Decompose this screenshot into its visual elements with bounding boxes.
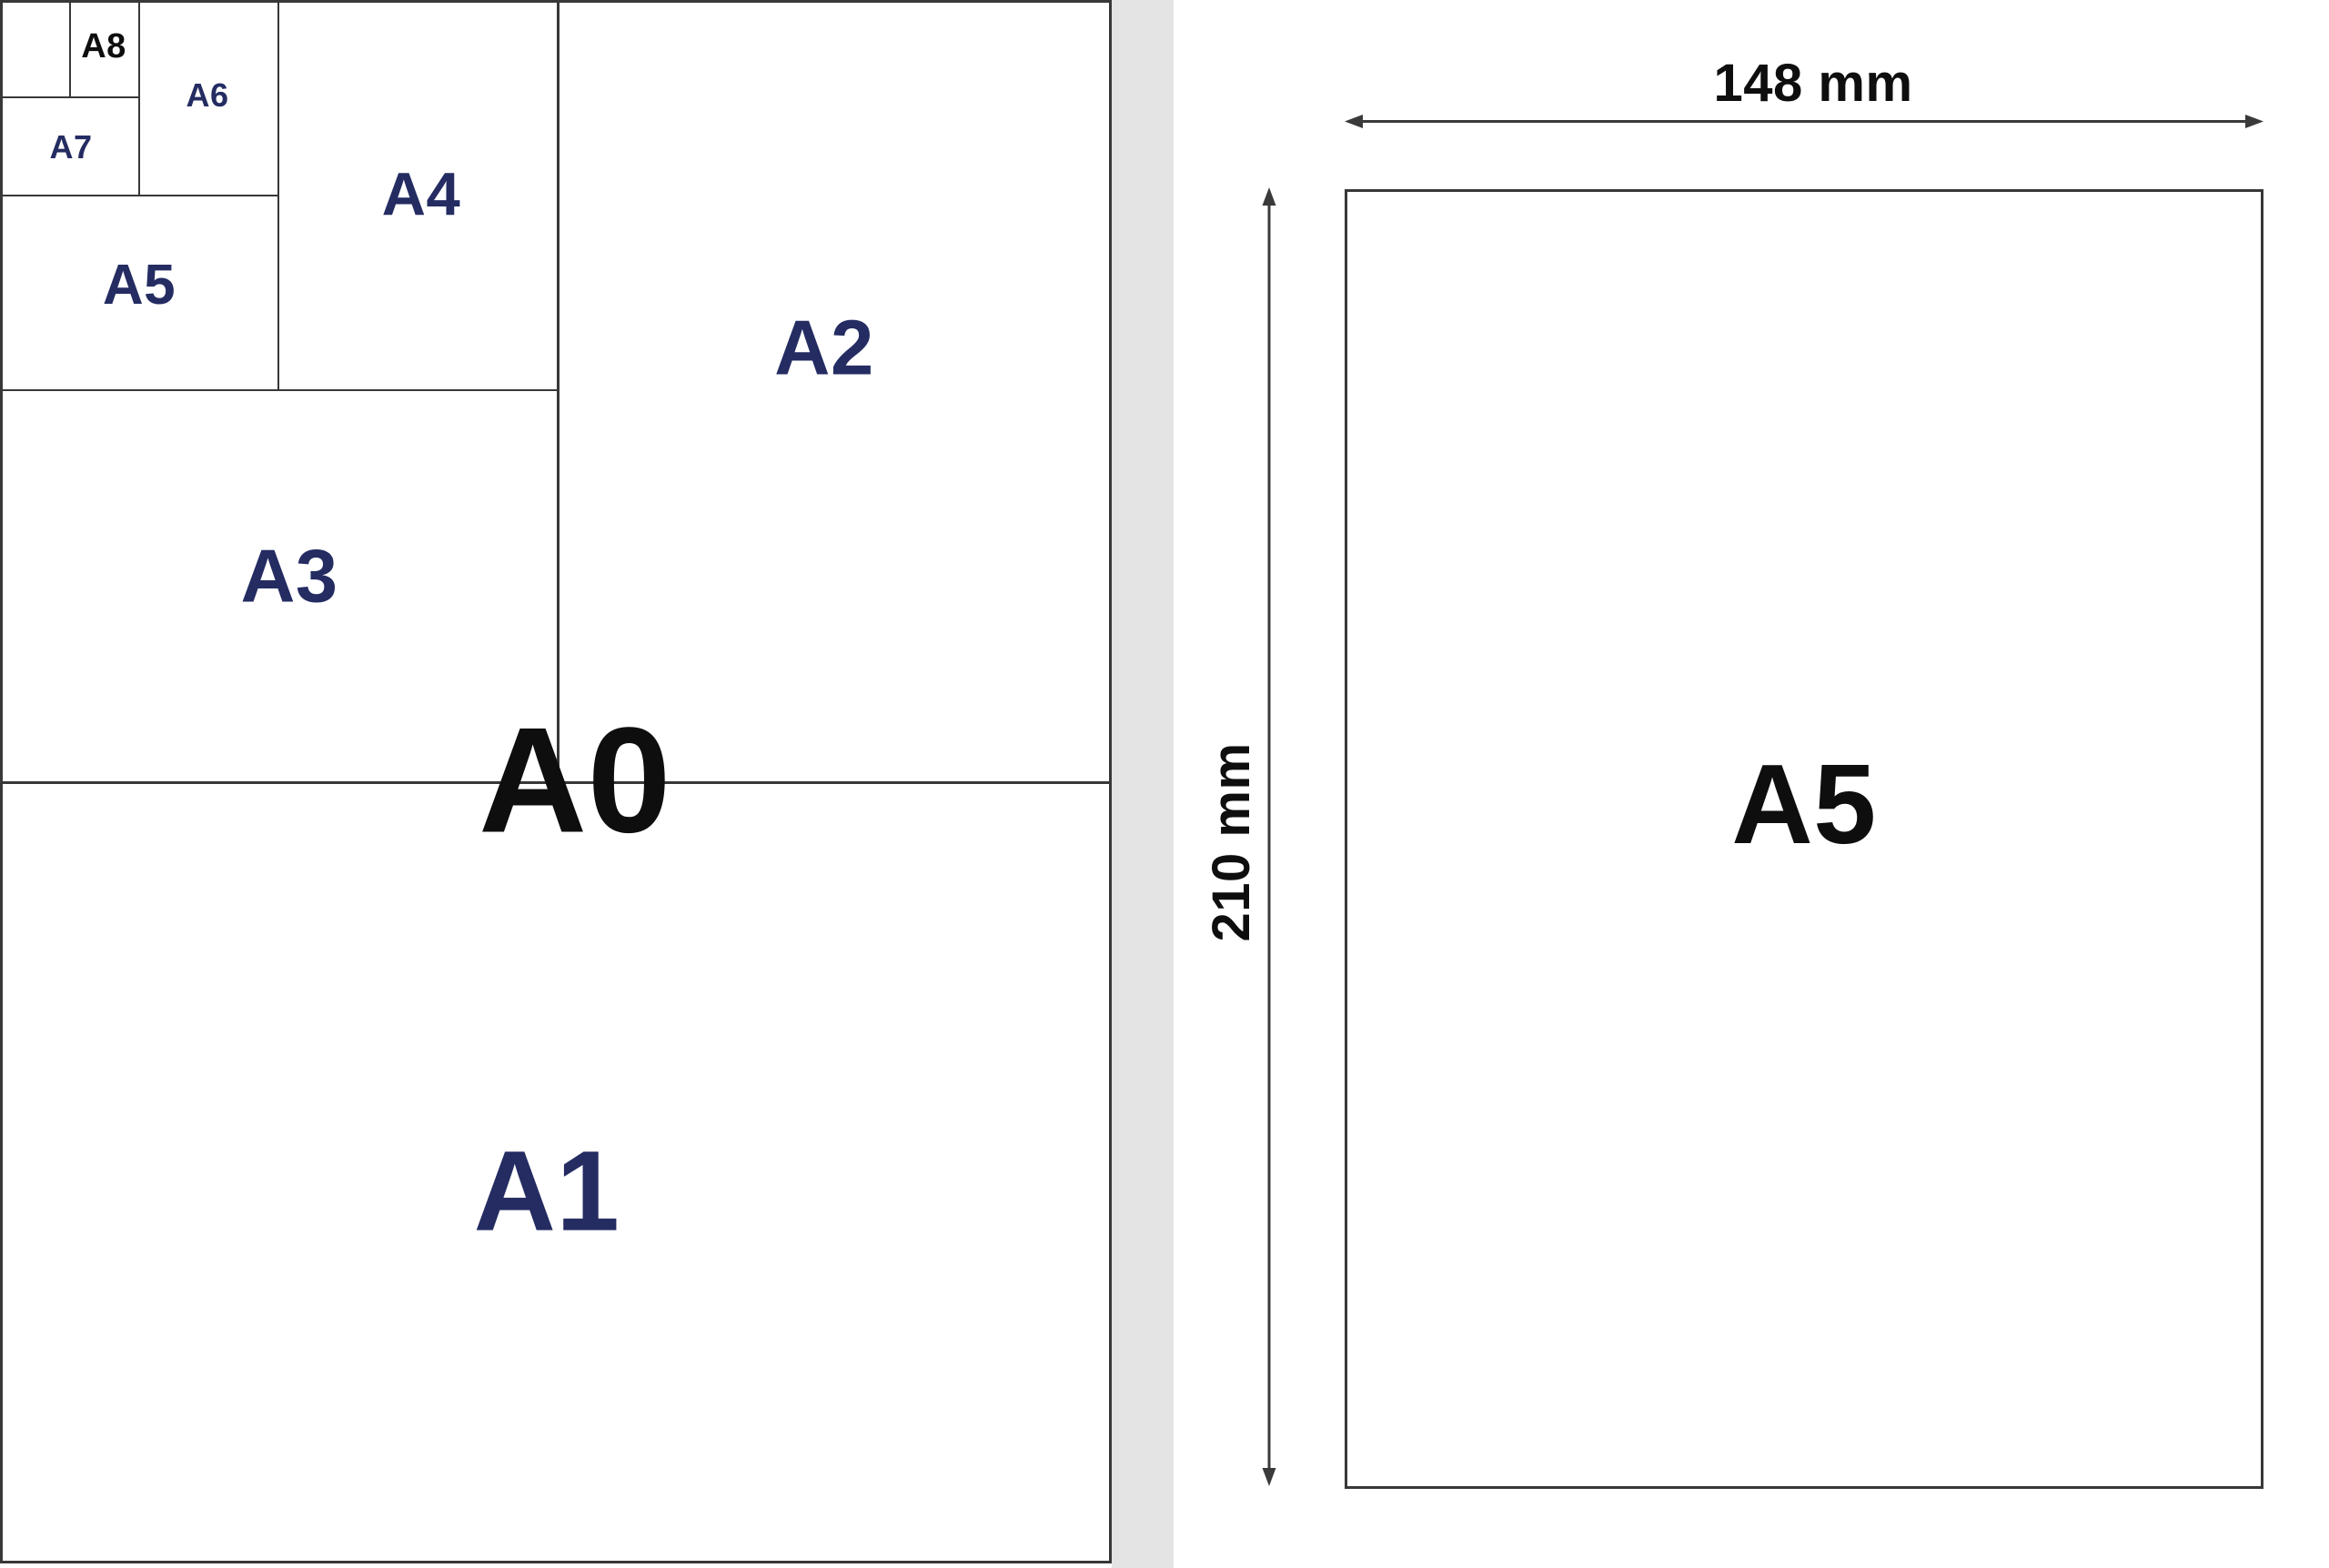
sheet-border-bottom <box>0 1561 1112 1563</box>
label-a4: A4 <box>382 165 461 226</box>
label-a7: A7 <box>49 131 92 164</box>
label-a3: A3 <box>240 538 338 614</box>
a5-detail-panel: A5 148 mm 210 mm <box>1174 0 2329 1568</box>
label-a8: A8 <box>81 29 126 64</box>
divider-a3-top <box>0 389 559 391</box>
width-dimension-label: 148 mm <box>1713 57 1912 110</box>
label-a5: A5 <box>103 257 176 314</box>
divider-a2-left <box>557 0 560 783</box>
label-a1: A1 <box>474 1135 620 1249</box>
height-dimension-label: 210 mm <box>1205 742 1258 941</box>
label-a6: A6 <box>186 79 228 112</box>
height-arrow <box>1263 187 1276 1486</box>
paper-size-figure: A8 A6 A7 A5 A4 A3 A2 A0 A1 A5 148 mm 210… <box>0 0 2329 1568</box>
width-arrow <box>1345 115 2263 128</box>
label-a0: A0 <box>479 706 671 856</box>
divider-a8-left <box>69 0 71 97</box>
a0-sheet-diagram: A8 A6 A7 A5 A4 A3 A2 A0 A1 <box>0 0 1112 1563</box>
label-a5-detail: A5 <box>1731 749 1877 861</box>
label-a2: A2 <box>774 310 874 387</box>
sheet-border-top <box>0 0 1112 3</box>
page-gutter <box>1112 0 1174 1568</box>
